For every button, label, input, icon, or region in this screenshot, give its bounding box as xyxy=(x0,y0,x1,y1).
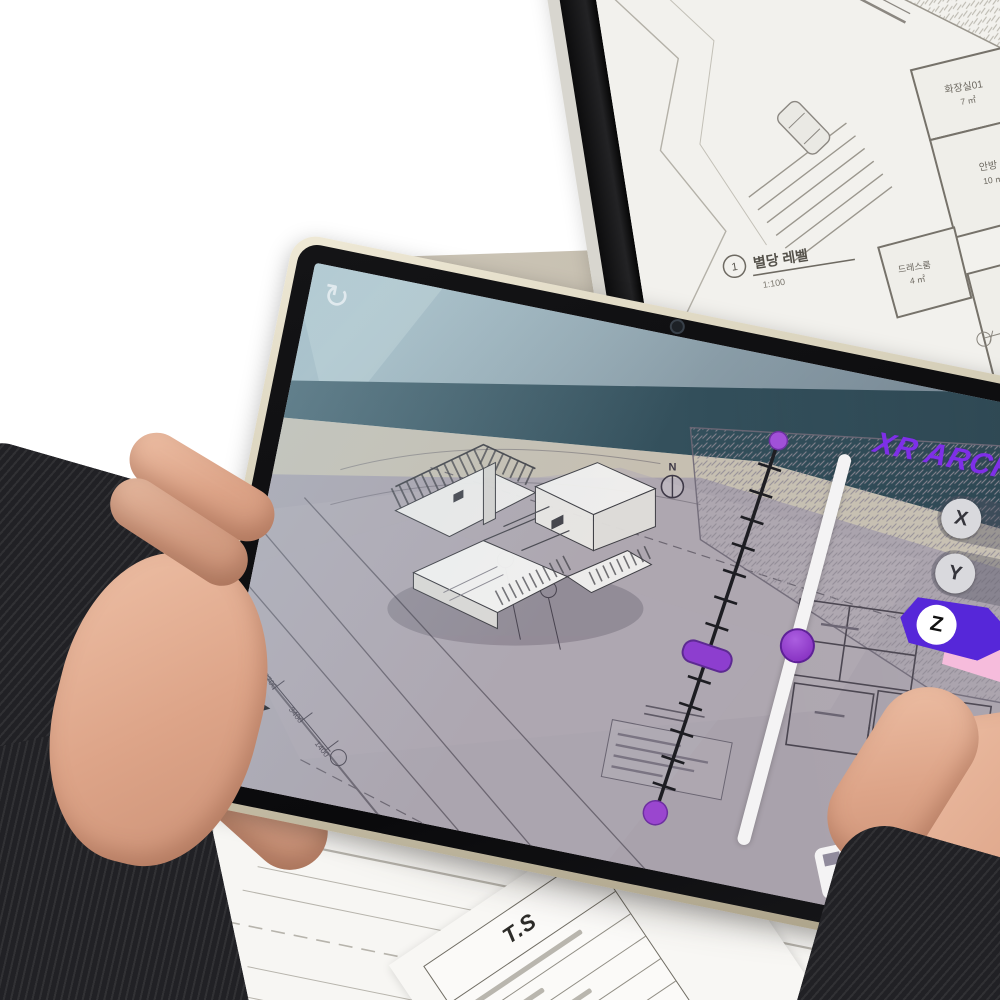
scene: 화장실01 7 ㎡ 안방 10 ㎡ 드레스룸 4 ㎡ 침실 14 ㎡ 1 별당 … xyxy=(0,0,1000,1000)
axis-button-x-label: X xyxy=(938,495,985,542)
axis-button-y-label: Y xyxy=(932,550,979,597)
axis-button-z-label: Z xyxy=(913,601,960,648)
north-label: N xyxy=(668,462,676,474)
